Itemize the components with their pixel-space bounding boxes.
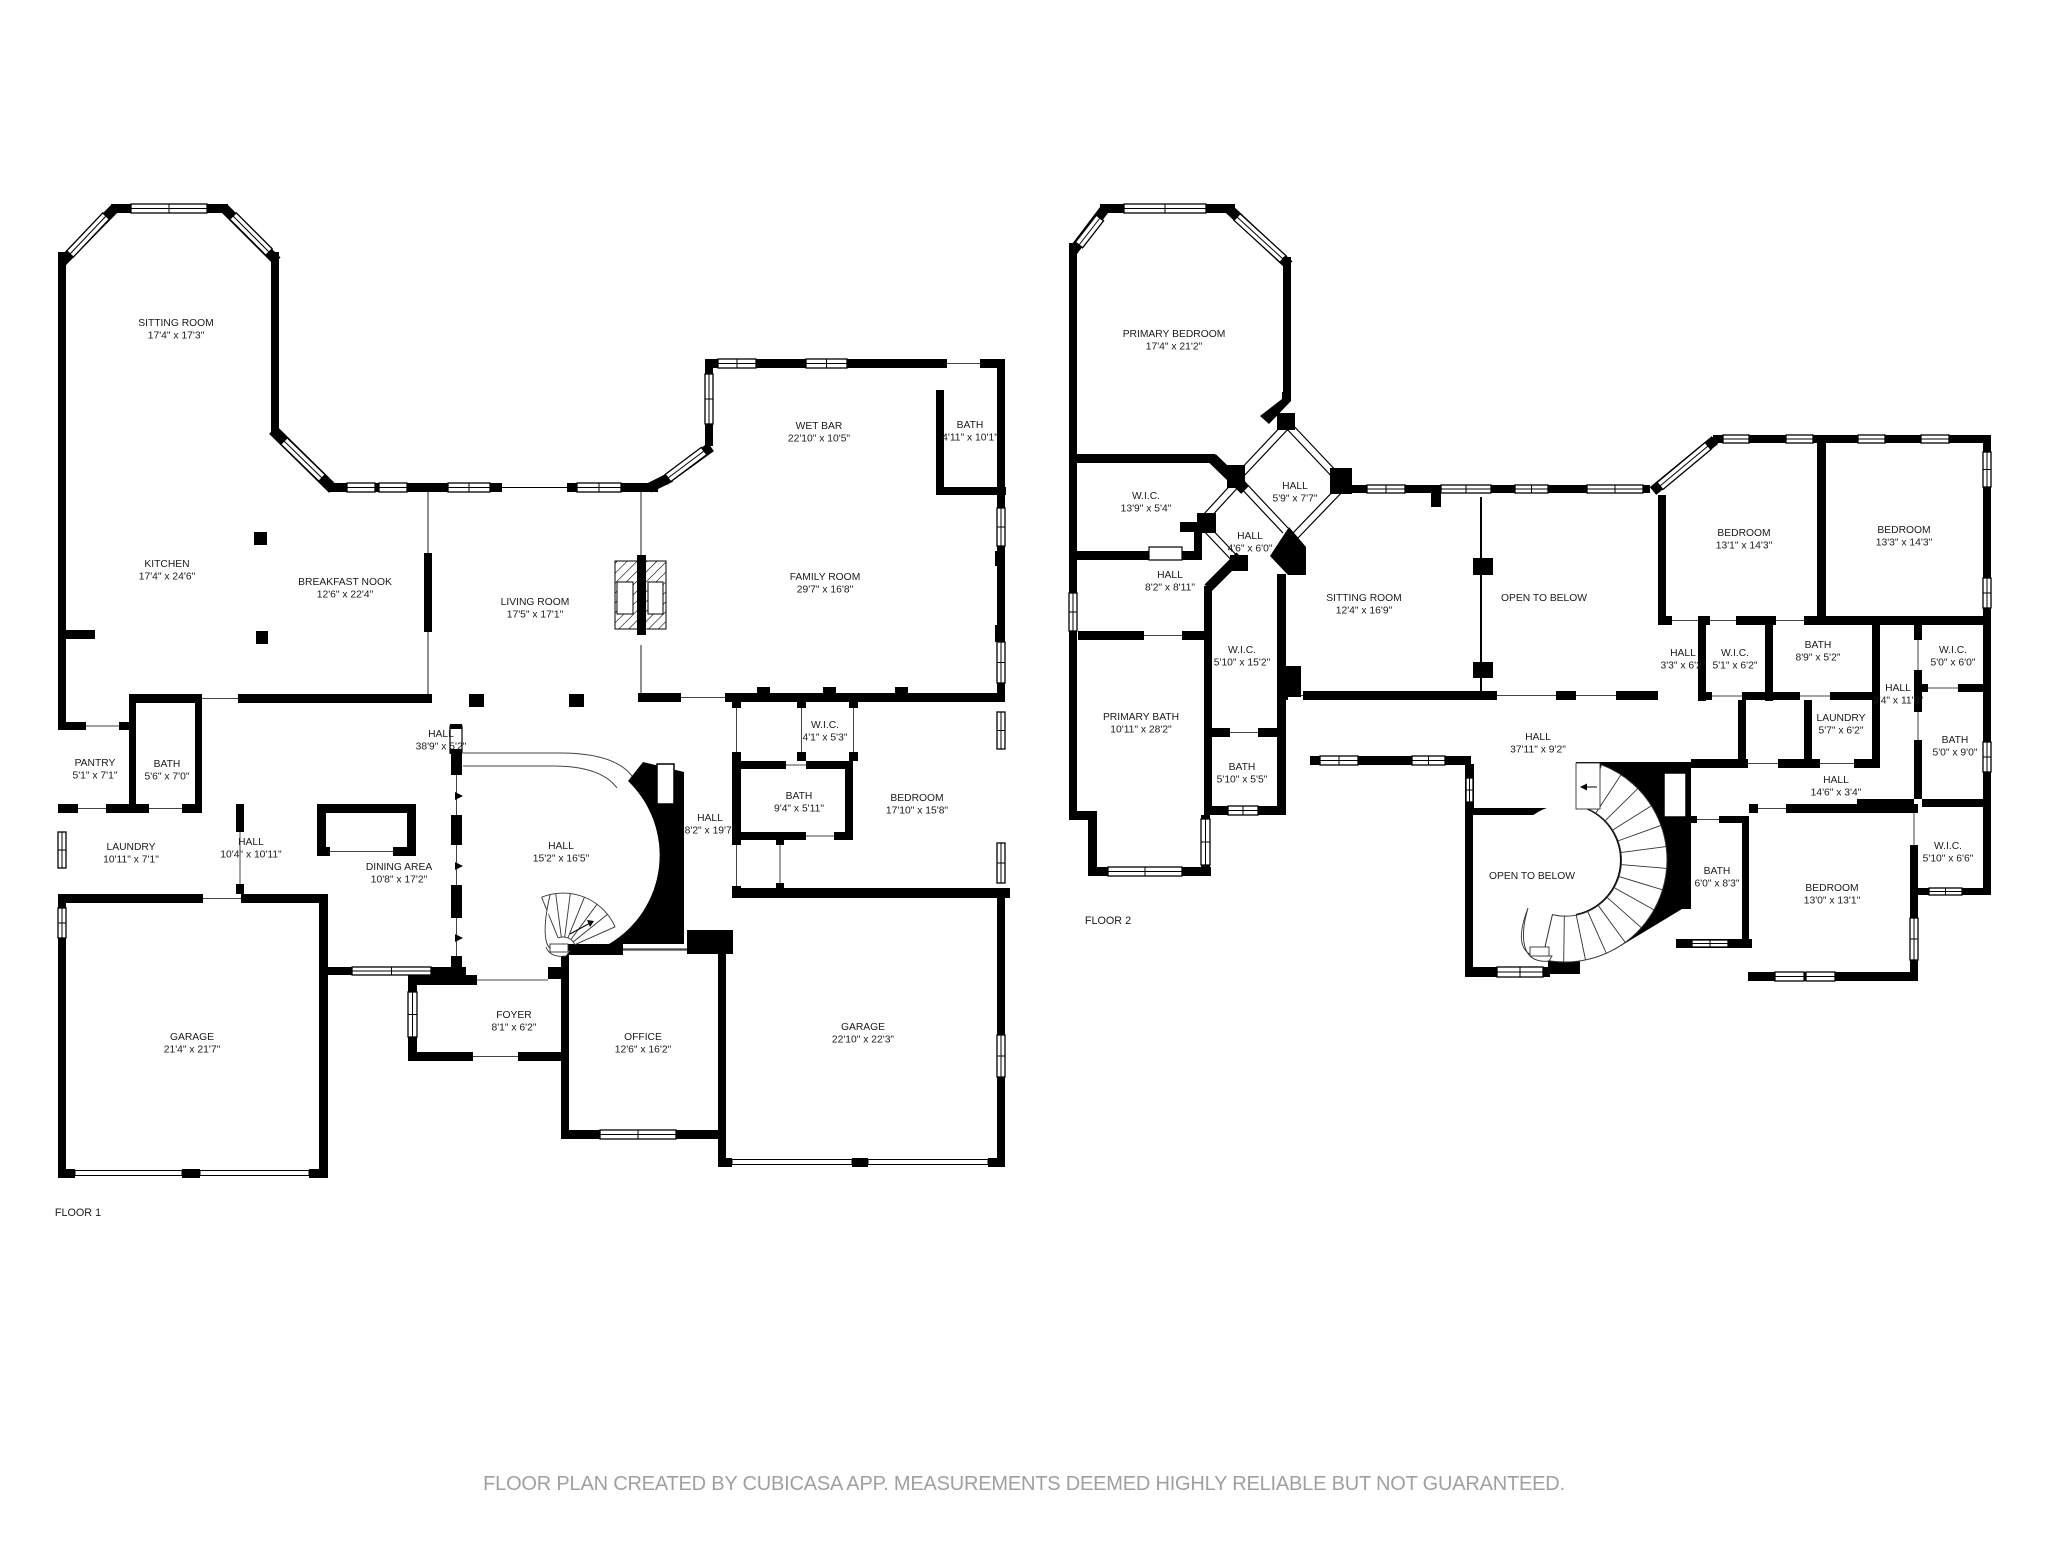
svg-text:OPEN TO BELOW: OPEN TO BELOW [1501, 593, 1587, 604]
svg-text:6'0" x 8'3": 6'0" x 8'3" [1694, 879, 1739, 890]
svg-text:BREAKFAST NOOK: BREAKFAST NOOK [298, 577, 392, 588]
svg-text:5'10" x 15'2": 5'10" x 15'2" [1214, 658, 1271, 669]
svg-text:3'3" x 6'2": 3'3" x 6'2" [1660, 661, 1705, 672]
svg-text:4'6" x 6'0": 4'6" x 6'0" [1227, 544, 1272, 555]
svg-text:5'1" x 7'1": 5'1" x 7'1" [72, 771, 117, 782]
svg-text:17'5" x 17'1": 17'5" x 17'1" [507, 610, 564, 621]
svg-text:PANTRY: PANTRY [75, 758, 116, 769]
svg-text:HALL: HALL [1885, 683, 1911, 694]
svg-text:17'10" x 15'8": 17'10" x 15'8" [886, 806, 949, 817]
svg-text:29'7" x 16'8": 29'7" x 16'8" [797, 585, 854, 596]
svg-text:BEDROOM: BEDROOM [1877, 525, 1930, 536]
svg-text:3'4" x 11'8": 3'4" x 11'8" [1873, 696, 1923, 707]
svg-text:FAMILY ROOM: FAMILY ROOM [790, 572, 861, 583]
svg-text:4'11" x 10'1": 4'11" x 10'1" [942, 433, 998, 444]
svg-text:HALL: HALL [697, 813, 723, 824]
svg-text:13'3" x 14'3": 13'3" x 14'3" [1876, 538, 1933, 549]
svg-text:BEDROOM: BEDROOM [1805, 883, 1858, 894]
svg-text:SITTING ROOM: SITTING ROOM [138, 318, 214, 329]
svg-text:17'4" x 21'2": 17'4" x 21'2" [1146, 342, 1203, 353]
svg-text:5'1" x 6'2": 5'1" x 6'2" [1712, 661, 1757, 672]
svg-text:12'6" x 22'4": 12'6" x 22'4" [317, 590, 374, 601]
svg-text:HALL: HALL [238, 837, 264, 848]
svg-text:38'9" x 5'2": 38'9" x 5'2" [416, 742, 467, 753]
svg-text:LIVING ROOM: LIVING ROOM [501, 597, 570, 608]
svg-text:17'4" x 17'3": 17'4" x 17'3" [148, 331, 205, 342]
svg-text:5'10" x 6'6": 5'10" x 6'6" [1923, 854, 1974, 865]
svg-text:FLOOR 2: FLOOR 2 [1085, 915, 1131, 927]
svg-text:10'8" x 17'2": 10'8" x 17'2" [371, 875, 428, 886]
svg-text:10'4" x 10'11": 10'4" x 10'11" [220, 850, 282, 861]
svg-text:BEDROOM: BEDROOM [1717, 528, 1770, 539]
svg-text:14'6" x 3'4": 14'6" x 3'4" [1811, 788, 1862, 799]
svg-text:W.I.C.: W.I.C. [1721, 648, 1749, 659]
svg-text:BATH: BATH [154, 759, 181, 770]
svg-text:13'1" x 14'3": 13'1" x 14'3" [1716, 541, 1773, 552]
svg-text:HALL: HALL [1237, 531, 1263, 542]
svg-text:5'0" x 6'0": 5'0" x 6'0" [1930, 658, 1975, 669]
svg-text:PRIMARY BATH: PRIMARY BATH [1103, 712, 1179, 723]
svg-text:4'1" x 5'3": 4'1" x 5'3" [802, 733, 847, 744]
svg-text:37'11" x 9'2": 37'11" x 9'2" [1510, 745, 1566, 756]
svg-text:FOYER: FOYER [496, 1010, 531, 1021]
svg-text:FLOOR 1: FLOOR 1 [55, 1207, 101, 1219]
svg-text:WET BAR: WET BAR [796, 421, 843, 432]
svg-text:LAUNDRY: LAUNDRY [1816, 713, 1865, 724]
svg-text:W.I.C.: W.I.C. [1939, 645, 1967, 656]
svg-text:5'0" x 9'0": 5'0" x 9'0" [1932, 748, 1977, 759]
svg-text:5'6" x 7'0": 5'6" x 7'0" [144, 772, 189, 783]
svg-text:5'9" x 7'7": 5'9" x 7'7" [1272, 494, 1317, 505]
svg-text:10'11" x 7'1": 10'11" x 7'1" [103, 855, 159, 866]
svg-text:HALL: HALL [1525, 732, 1551, 743]
svg-text:OFFICE: OFFICE [624, 1032, 662, 1043]
svg-text:GARAGE: GARAGE [841, 1022, 885, 1033]
svg-text:17'4" x 24'6": 17'4" x 24'6" [139, 572, 196, 583]
svg-text:OPEN TO BELOW: OPEN TO BELOW [1489, 871, 1575, 882]
svg-text:HALL: HALL [548, 841, 574, 852]
svg-text:W.I.C.: W.I.C. [1934, 841, 1962, 852]
svg-text:HALL: HALL [1282, 481, 1308, 492]
svg-text:BATH: BATH [1805, 640, 1832, 651]
svg-text:W.I.C.: W.I.C. [1228, 645, 1256, 656]
svg-text:BATH: BATH [1942, 735, 1969, 746]
svg-text:GARAGE: GARAGE [170, 1032, 214, 1043]
svg-text:BATH: BATH [786, 791, 813, 802]
svg-text:W.I.C.: W.I.C. [1132, 491, 1160, 502]
svg-text:KITCHEN: KITCHEN [144, 559, 189, 570]
svg-text:12'6" x 16'2": 12'6" x 16'2" [615, 1045, 672, 1056]
svg-text:HALL: HALL [1157, 570, 1183, 581]
svg-text:FLOOR PLAN CREATED BY CUBICASA: FLOOR PLAN CREATED BY CUBICASA APP. MEAS… [483, 1473, 1565, 1495]
svg-text:12'4" x 16'9": 12'4" x 16'9" [1336, 606, 1393, 617]
svg-text:5'10" x 5'5": 5'10" x 5'5" [1217, 775, 1268, 786]
svg-text:8'2" x 19'7": 8'2" x 19'7" [685, 826, 736, 837]
svg-text:BATH: BATH [1229, 762, 1256, 773]
svg-text:HALL: HALL [1823, 775, 1849, 786]
svg-text:10'11" x 28'2": 10'11" x 28'2" [1110, 725, 1172, 736]
svg-text:BEDROOM: BEDROOM [890, 793, 943, 804]
svg-text:8'1" x 6'2": 8'1" x 6'2" [491, 1023, 536, 1034]
svg-text:22'10" x 22'3": 22'10" x 22'3" [832, 1035, 895, 1046]
svg-text:9'4" x 5'11": 9'4" x 5'11" [774, 804, 824, 815]
svg-text:22'10" x 10'5": 22'10" x 10'5" [788, 434, 851, 445]
svg-text:HALL: HALL [1670, 648, 1696, 659]
svg-text:13'9" x 5'4": 13'9" x 5'4" [1121, 504, 1172, 515]
svg-text:21'4" x 21'7": 21'4" x 21'7" [164, 1045, 221, 1056]
svg-text:BATH: BATH [957, 420, 984, 431]
svg-text:BATH: BATH [1704, 866, 1731, 877]
svg-text:HALL: HALL [428, 729, 454, 740]
svg-text:PRIMARY BEDROOM: PRIMARY BEDROOM [1123, 329, 1226, 340]
svg-text:LAUNDRY: LAUNDRY [106, 842, 155, 853]
svg-text:13'0" x 13'1": 13'0" x 13'1" [1804, 896, 1861, 907]
svg-text:8'9" x 5'2": 8'9" x 5'2" [1795, 653, 1840, 664]
svg-text:15'2" x 16'5": 15'2" x 16'5" [533, 854, 590, 865]
svg-text:W.I.C.: W.I.C. [811, 720, 839, 731]
svg-text:8'2" x 8'11": 8'2" x 8'11" [1145, 583, 1195, 594]
svg-text:DINING AREA: DINING AREA [366, 862, 433, 873]
svg-text:5'7" x 6'2": 5'7" x 6'2" [1818, 726, 1863, 737]
svg-text:SITTING ROOM: SITTING ROOM [1326, 593, 1402, 604]
